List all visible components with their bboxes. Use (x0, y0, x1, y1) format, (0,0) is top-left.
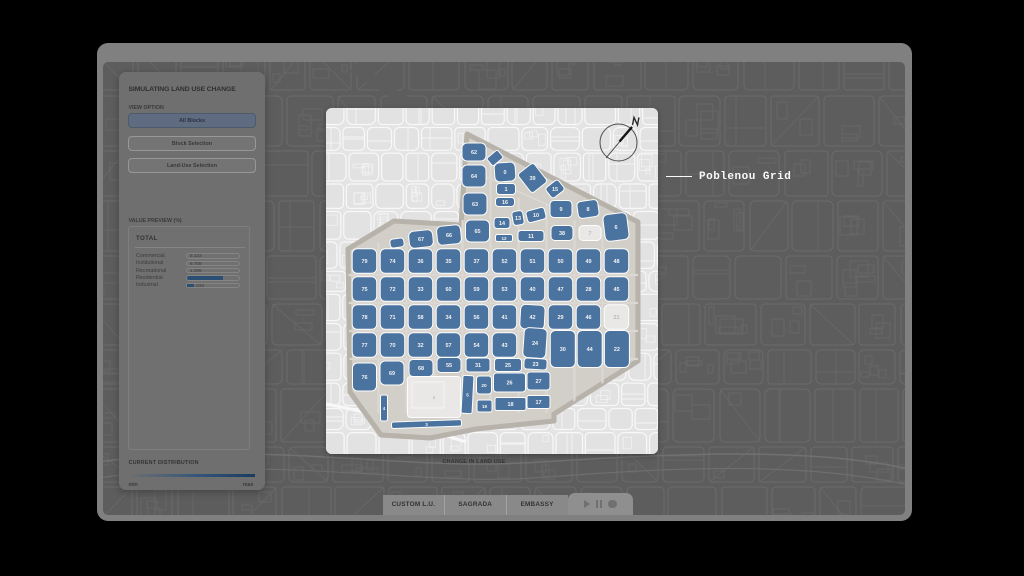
svg-text:37: 37 (473, 259, 479, 265)
svg-text:51: 51 (529, 259, 535, 265)
svg-text:66: 66 (446, 233, 452, 239)
svg-text:7: 7 (588, 231, 591, 237)
svg-text:8: 8 (586, 207, 589, 213)
svg-text:2: 2 (433, 395, 436, 400)
svg-text:77: 77 (361, 343, 367, 349)
svg-text:11: 11 (528, 234, 534, 240)
svg-text:0: 0 (503, 170, 506, 176)
svg-text:46: 46 (585, 315, 591, 321)
svg-text:34: 34 (445, 315, 452, 321)
svg-text:28: 28 (585, 287, 591, 293)
svg-text:64: 64 (471, 174, 478, 180)
svg-text:33: 33 (417, 287, 423, 293)
svg-text:6: 6 (614, 225, 617, 231)
svg-text:26: 26 (506, 380, 512, 386)
svg-text:16: 16 (502, 200, 508, 206)
svg-text:67: 67 (418, 237, 424, 243)
svg-text:31: 31 (475, 363, 481, 369)
svg-text:15: 15 (552, 187, 558, 193)
svg-text:21: 21 (613, 315, 619, 321)
svg-text:30: 30 (560, 347, 566, 353)
svg-text:50: 50 (557, 259, 563, 265)
svg-text:54: 54 (473, 343, 480, 349)
svg-text:12: 12 (501, 236, 507, 241)
svg-text:38: 38 (559, 231, 565, 237)
svg-text:59: 59 (473, 287, 479, 293)
svg-text:13: 13 (515, 216, 521, 222)
svg-text:72: 72 (389, 287, 395, 293)
svg-text:35: 35 (445, 259, 451, 265)
svg-text:58: 58 (417, 315, 423, 321)
svg-text:43: 43 (501, 343, 507, 349)
svg-text:5: 5 (466, 392, 469, 397)
svg-text:29: 29 (557, 315, 563, 321)
svg-text:9: 9 (559, 207, 562, 213)
svg-text:45: 45 (613, 287, 619, 293)
svg-text:57: 57 (445, 343, 451, 349)
svg-text:69: 69 (389, 371, 395, 377)
svg-text:52: 52 (501, 259, 507, 265)
svg-text:56: 56 (473, 315, 479, 321)
svg-text:10: 10 (533, 213, 539, 219)
svg-text:25: 25 (505, 363, 511, 369)
svg-text:44: 44 (587, 347, 594, 353)
svg-text:40: 40 (529, 287, 535, 293)
svg-text:75: 75 (361, 287, 367, 293)
svg-text:19: 19 (482, 404, 488, 409)
svg-text:70: 70 (389, 343, 395, 349)
svg-text:39: 39 (529, 176, 535, 182)
svg-text:48: 48 (613, 259, 619, 265)
svg-text:53: 53 (501, 287, 507, 293)
svg-text:79: 79 (361, 259, 367, 265)
svg-text:65: 65 (474, 229, 480, 235)
svg-text:22: 22 (614, 347, 620, 353)
svg-text:63: 63 (472, 202, 478, 208)
svg-text:47: 47 (557, 287, 563, 293)
svg-text:27: 27 (535, 379, 541, 385)
svg-text:17: 17 (535, 400, 541, 406)
svg-text:23: 23 (532, 362, 538, 368)
svg-text:49: 49 (585, 259, 591, 265)
svg-text:78: 78 (361, 315, 367, 321)
svg-text:20: 20 (481, 383, 487, 389)
svg-text:32: 32 (417, 343, 423, 349)
svg-text:3: 3 (425, 422, 428, 427)
svg-text:55: 55 (446, 363, 452, 369)
svg-text:62: 62 (471, 150, 477, 156)
svg-text:36: 36 (417, 259, 423, 265)
svg-text:74: 74 (389, 259, 396, 265)
svg-text:68: 68 (418, 366, 424, 372)
svg-text:42: 42 (529, 315, 535, 321)
svg-text:14: 14 (499, 221, 506, 227)
svg-text:18: 18 (507, 402, 513, 408)
svg-text:76: 76 (361, 375, 367, 381)
svg-text:71: 71 (389, 315, 395, 321)
svg-text:41: 41 (501, 315, 507, 321)
svg-text:24: 24 (532, 341, 539, 347)
svg-text:60: 60 (445, 287, 451, 293)
svg-text:1: 1 (504, 187, 507, 193)
